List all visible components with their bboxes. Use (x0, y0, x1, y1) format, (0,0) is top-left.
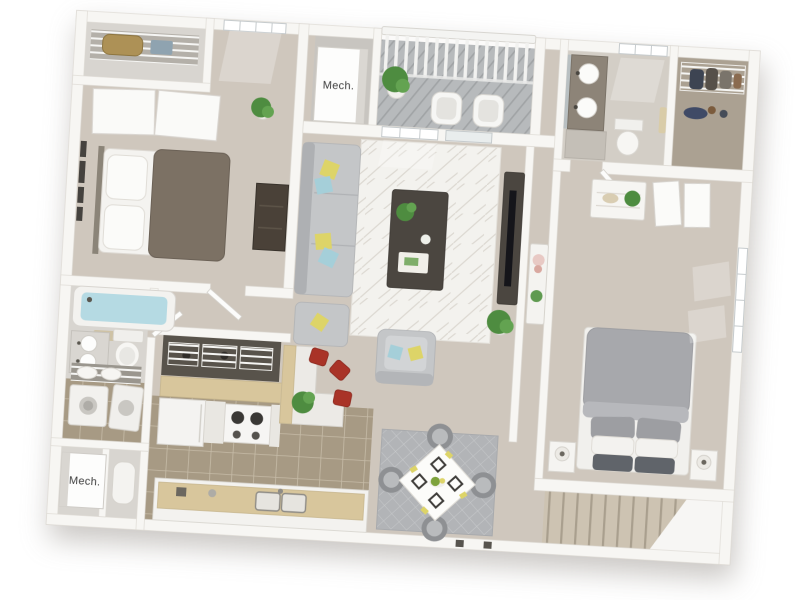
counter-appliance (176, 487, 187, 497)
throw-pillow-blue (314, 176, 333, 195)
hanging-clothes-4 (733, 73, 742, 88)
shower (565, 130, 607, 160)
sink-basin-2 (281, 493, 306, 512)
entry-door-mark-2 (483, 541, 491, 548)
mech-label-top: Mech. (323, 80, 355, 93)
bed-pillow (106, 154, 149, 200)
master-pillow-white (591, 436, 634, 456)
wall-art (80, 141, 87, 157)
wire-basket (168, 342, 199, 366)
floor-plan-stage: Mech. (0, 0, 800, 600)
hanging-clothes-3 (719, 71, 732, 90)
closet-slider-panel (92, 89, 155, 136)
storage-box (150, 40, 173, 55)
master-closet-door (653, 181, 682, 227)
throw-pillow-yellow-2 (315, 233, 332, 250)
patio-chair-seat (436, 97, 457, 120)
hanging-clothes-2 (705, 68, 718, 91)
sink-basin (255, 492, 280, 511)
closet-slider-panel-2 (155, 90, 221, 141)
sink (80, 335, 97, 352)
hanging-clothes (689, 69, 704, 90)
coffee-table (387, 189, 449, 290)
window-light (219, 30, 282, 84)
master-sink (578, 63, 599, 84)
wire-basket-2 (202, 344, 237, 368)
bar-stool-3 (333, 389, 353, 407)
master-sink-2 (576, 97, 597, 118)
dresser-dark (253, 183, 289, 251)
hall-closet (90, 29, 200, 65)
master-pillow-white-2 (635, 438, 678, 458)
bed-pillow-2 (103, 204, 146, 250)
apartment-plan: Mech. (46, 8, 760, 565)
mech-label-bottom: Mech. (69, 475, 101, 489)
tray-book (404, 257, 418, 266)
accent-pillow-dark (592, 454, 633, 472)
stove (223, 404, 271, 445)
water-heater (111, 461, 135, 504)
masterbath-window (619, 44, 668, 57)
entry-door-mark (455, 540, 463, 547)
bathtub-water (80, 292, 168, 325)
wall-masterbath-south-a (553, 159, 571, 172)
counter-gap (203, 401, 225, 444)
wall-art-3 (77, 187, 84, 203)
laundry-nook (68, 363, 145, 432)
patio-chair-2-seat (478, 99, 499, 122)
accent-pillow-dark-2 (634, 456, 675, 474)
master-toilet-tank (614, 118, 643, 131)
toilet-tank (113, 329, 144, 343)
master-closet-door-2 (684, 183, 710, 227)
window-light-living (378, 140, 437, 170)
wall-art-4 (76, 207, 83, 221)
storage-basket (102, 34, 143, 56)
refrigerator (157, 398, 206, 447)
mech-closet-top: Mech. (313, 47, 367, 124)
wire-basket-3 (240, 347, 273, 371)
balcony-glass-door (446, 130, 493, 143)
guest-bed-duvet (148, 149, 230, 261)
floor-plan-rendering: Mech. (0, 0, 800, 600)
